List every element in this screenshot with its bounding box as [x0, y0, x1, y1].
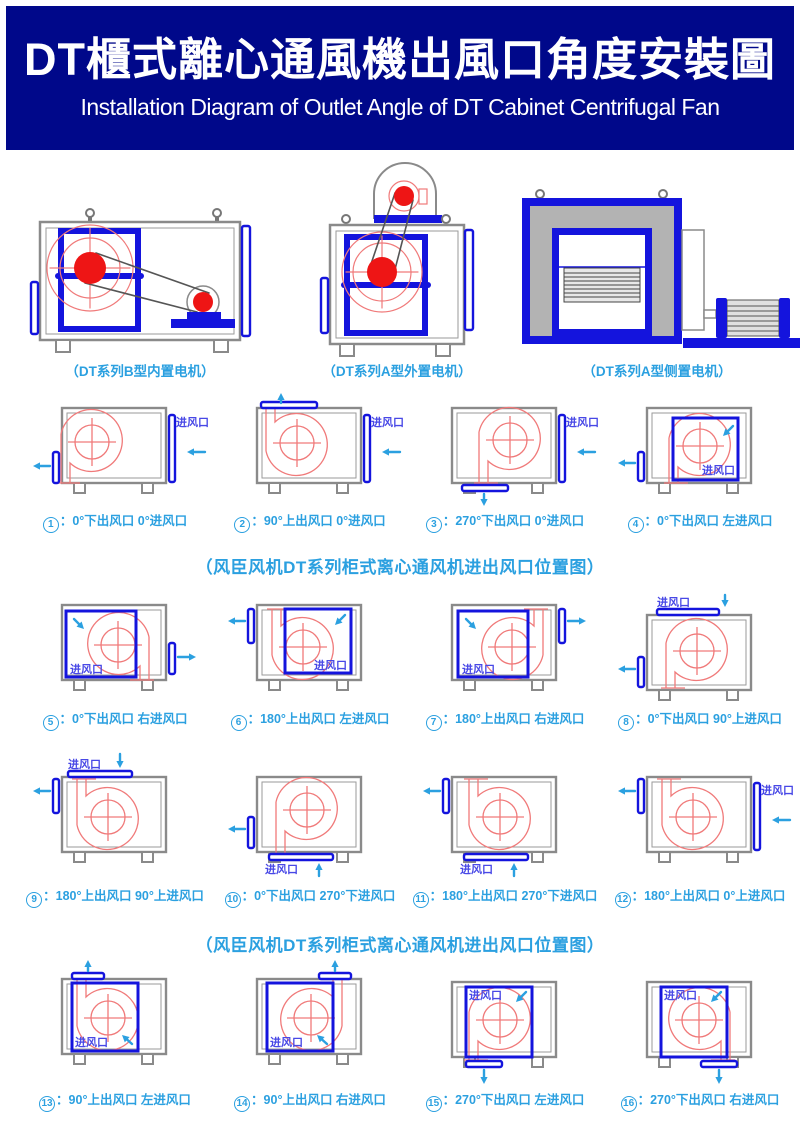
inlet-label: 进风口 — [176, 415, 209, 429]
port-flange — [169, 643, 175, 674]
port-flange — [559, 415, 565, 482]
machine-drawing-side-motor — [522, 190, 800, 348]
port-flange — [638, 657, 644, 687]
diagram-number-badge: 1 — [43, 517, 59, 533]
port-flange — [657, 609, 719, 615]
fan-diagram-drawing: 进风口 — [410, 392, 600, 510]
diagram-number-badge: 6 — [231, 715, 247, 731]
diagram-number-badge: 15 — [426, 1096, 442, 1112]
port-flange — [443, 779, 449, 813]
diagram-caption: 14：90°上出风口 右进风口 — [201, 1089, 419, 1112]
diagram-number-badge: 11 — [413, 892, 429, 908]
inlet-label: 进风口 — [702, 463, 735, 477]
diagram-caption: 4：0°下出风口 左进风口 — [591, 510, 800, 533]
inlet-label: 进风口 — [265, 862, 298, 876]
port-flange — [638, 452, 644, 481]
page-subtitle: Installation Diagram of Outlet Angle of … — [80, 94, 719, 121]
installation-diagram-page: DT櫃式離心通風機出風口角度安裝圖 Installation Diagram o… — [0, 0, 800, 1140]
diagram-number-badge: 12 — [615, 892, 631, 908]
diagram-number-badge: 9 — [26, 892, 42, 908]
diagram-caption: 8：0°下出风口 90°上进风口 — [591, 708, 800, 731]
diagram-caption: 11：180°上出风口 270°下进风口 — [396, 885, 614, 908]
fan-diagram-13: 进风口13：90°上出风口 左进风口 — [20, 958, 210, 1113]
flow-arrow-icon — [84, 960, 91, 971]
flow-arrow-icon — [33, 787, 50, 794]
inlet-label: 进风口 — [270, 1035, 303, 1049]
flow-arrow-icon — [228, 825, 245, 832]
port-flange — [638, 779, 644, 813]
port-flange — [559, 609, 565, 643]
fan-diagram-drawing: 进风口 — [20, 392, 210, 510]
fan-diagram-11: 进风口11：180°上出风口 270°下进风口 — [410, 742, 600, 909]
fan-diagram-7: 进风口7：180°上出风口 右进风口 — [410, 593, 600, 732]
diagram-caption: 6：180°上出风口 左进风口 — [201, 708, 419, 731]
fan-diagram-drawing: 进风口 — [20, 958, 210, 1089]
inlet-label: 进风口 — [664, 988, 697, 1002]
port-flange — [248, 609, 254, 643]
port-flange — [269, 854, 333, 860]
inlet-label: 进风口 — [657, 595, 690, 609]
inlet-label: 进风口 — [314, 658, 347, 672]
section-title-mid: （风臣风机DT系列柜式离心通风机进出风口位置图） — [0, 553, 800, 578]
diagram-caption: 12：180°上出风口 0°上进风口 — [591, 885, 800, 908]
fan-diagram-drawing: 进风口 — [20, 593, 210, 708]
flow-arrow-icon — [178, 653, 196, 660]
fan-diagram-drawing: 进风口 — [215, 392, 405, 510]
fan-diagram-9: 进风口9：180°上出风口 90°上进风口 — [20, 742, 210, 909]
flow-arrow-icon — [116, 754, 123, 768]
section-title-bottom: （风臣风机DT系列柜式离心通风机进出风口位置图） — [0, 931, 800, 956]
inlet-label: 进风口 — [70, 662, 103, 676]
diagram-number-badge: 14 — [234, 1096, 250, 1112]
flow-arrow-icon — [577, 448, 595, 455]
diagram-number-badge: 10 — [225, 892, 241, 908]
header-banner: DT櫃式離心通風機出風口角度安裝圖 Installation Diagram o… — [6, 6, 794, 150]
port-flange — [248, 817, 254, 848]
fan-diagram-14: 进风口14：90°上出风口 右进风口 — [215, 958, 405, 1113]
fan-diagram-drawing: 进风口 — [605, 958, 795, 1089]
fan-diagram-drawing: 进风口 — [410, 593, 600, 708]
flow-arrow-icon — [187, 448, 205, 455]
fan-diagram-drawing: 进风口 — [605, 742, 795, 885]
diagram-caption: 9：180°上出风口 90°上进风口 — [6, 885, 224, 908]
inlet-label: 进风口 — [462, 662, 495, 676]
inlet-label: 进风口 — [75, 1035, 108, 1049]
flow-arrow-icon — [480, 1070, 487, 1084]
machine-caption-external: （DT系列A型外置电机） — [287, 360, 507, 380]
inlet-label: 进风口 — [460, 862, 493, 876]
port-flange — [53, 779, 59, 813]
diagram-number-badge: 16 — [621, 1096, 637, 1112]
flow-arrow-icon — [618, 459, 635, 466]
port-flange — [754, 783, 760, 850]
diagram-number-badge: 7 — [426, 715, 442, 731]
diagram-caption: 5：0°下出风口 右进风口 — [6, 708, 224, 731]
diagram-number-badge: 13 — [39, 1096, 55, 1112]
diagram-number-badge: 4 — [628, 517, 644, 533]
port-flange — [53, 452, 59, 483]
fan-diagram-10: 进风口10：0°下出风口 270°下进风口 — [215, 742, 405, 909]
fan-diagram-5: 进风口5：0°下出风口 右进风口 — [20, 593, 210, 732]
port-flange — [68, 771, 132, 777]
port-flange — [462, 485, 508, 491]
port-flange — [72, 973, 104, 979]
flow-arrow-icon — [33, 462, 50, 469]
diagram-caption: 10：0°下出风口 270°下进风口 — [201, 885, 419, 908]
fan-diagram-4: 进风口4：0°下出风口 左进风口 — [605, 392, 795, 534]
diagram-caption: 15：270°下出风口 左进风口 — [396, 1089, 614, 1112]
fan-diagram-3: 进风口3：270°下出风口 0°进风口 — [410, 392, 600, 534]
port-flange — [319, 973, 351, 979]
flow-arrow-icon — [618, 787, 635, 794]
fan-diagram-2: 进风口2：90°上出风口 0°进风口 — [215, 392, 405, 534]
flow-arrow-icon — [423, 787, 440, 794]
flow-arrow-icon — [315, 863, 322, 876]
fan-diagram-drawing: 进风口 — [215, 958, 405, 1089]
flow-arrow-icon — [568, 617, 586, 624]
port-flange — [261, 402, 317, 408]
flow-arrow-icon — [228, 617, 245, 624]
port-flange — [464, 854, 528, 860]
diagram-number-badge: 2 — [234, 517, 250, 533]
flow-arrow-icon — [331, 960, 338, 971]
flow-arrow-icon — [480, 494, 487, 506]
flow-arrow-icon — [772, 816, 790, 823]
fan-diagram-6: 进风口6：180°上出风口 左进风口 — [215, 593, 405, 732]
port-flange — [701, 1061, 737, 1067]
inlet-label: 进风口 — [761, 783, 794, 797]
fan-diagram-drawing: 进风口 — [20, 742, 210, 885]
diagram-caption: 13：90°上出风口 左进风口 — [6, 1089, 224, 1112]
fan-diagram-drawing: 进风口 — [215, 593, 405, 708]
port-flange — [169, 415, 175, 482]
port-flange — [466, 1061, 502, 1067]
diagram-number-badge: 8 — [618, 715, 634, 731]
inlet-label: 进风口 — [68, 757, 101, 771]
fan-diagram-1: 进风口1：0°下出风口 0°进风口 — [20, 392, 210, 534]
inlet-label: 进风口 — [371, 415, 404, 429]
fan-diagram-drawing: 进风口 — [605, 593, 795, 708]
diagram-caption: 1：0°下出风口 0°进风口 — [6, 510, 224, 533]
machine-caption-internal: （DT系列B型内置电机） — [30, 360, 250, 380]
diagram-caption: 16：270°下出风口 右进风口 — [591, 1089, 800, 1112]
flow-arrow-icon — [715, 1070, 722, 1084]
fan-diagram-drawing: 进风口 — [410, 958, 600, 1089]
fan-diagram-8: 进风口8：0°下出风口 90°上进风口 — [605, 593, 795, 732]
flow-arrow-icon — [618, 665, 635, 672]
fan-diagram-15: 进风口15：270°下出风口 左进风口 — [410, 958, 600, 1113]
fan-diagram-12: 进风口12：180°上出风口 0°上进风口 — [605, 742, 795, 909]
diagram-caption: 2：90°上出风口 0°进风口 — [201, 510, 419, 533]
flow-arrow-icon — [382, 448, 400, 455]
port-flange — [364, 415, 370, 482]
flow-arrow-icon — [721, 595, 728, 607]
machine-caption-side: （DT系列A型侧置电机） — [547, 360, 767, 380]
diagram-caption: 7：180°上出风口 右进风口 — [396, 708, 614, 731]
inlet-label: 进风口 — [566, 415, 599, 429]
machine-drawing-external-motor — [321, 163, 473, 356]
fan-diagram-drawing: 进风口 — [410, 742, 600, 885]
fan-diagram-drawing: 进风口 — [215, 742, 405, 885]
fan-diagram-16: 进风口16：270°下出风口 右进风口 — [605, 958, 795, 1113]
page-title: DT櫃式離心通風機出風口角度安裝圖 — [24, 35, 776, 85]
diagram-number-badge: 3 — [426, 517, 442, 533]
machine-drawings — [0, 160, 800, 392]
diagram-caption: 3：270°下出风口 0°进风口 — [396, 510, 614, 533]
inlet-label: 进风口 — [469, 988, 502, 1002]
flow-arrow-icon — [510, 863, 517, 876]
diagram-number-badge: 5 — [43, 715, 59, 731]
machine-drawing-internal-motor — [31, 209, 250, 352]
fan-diagram-drawing: 进风口 — [605, 392, 795, 510]
